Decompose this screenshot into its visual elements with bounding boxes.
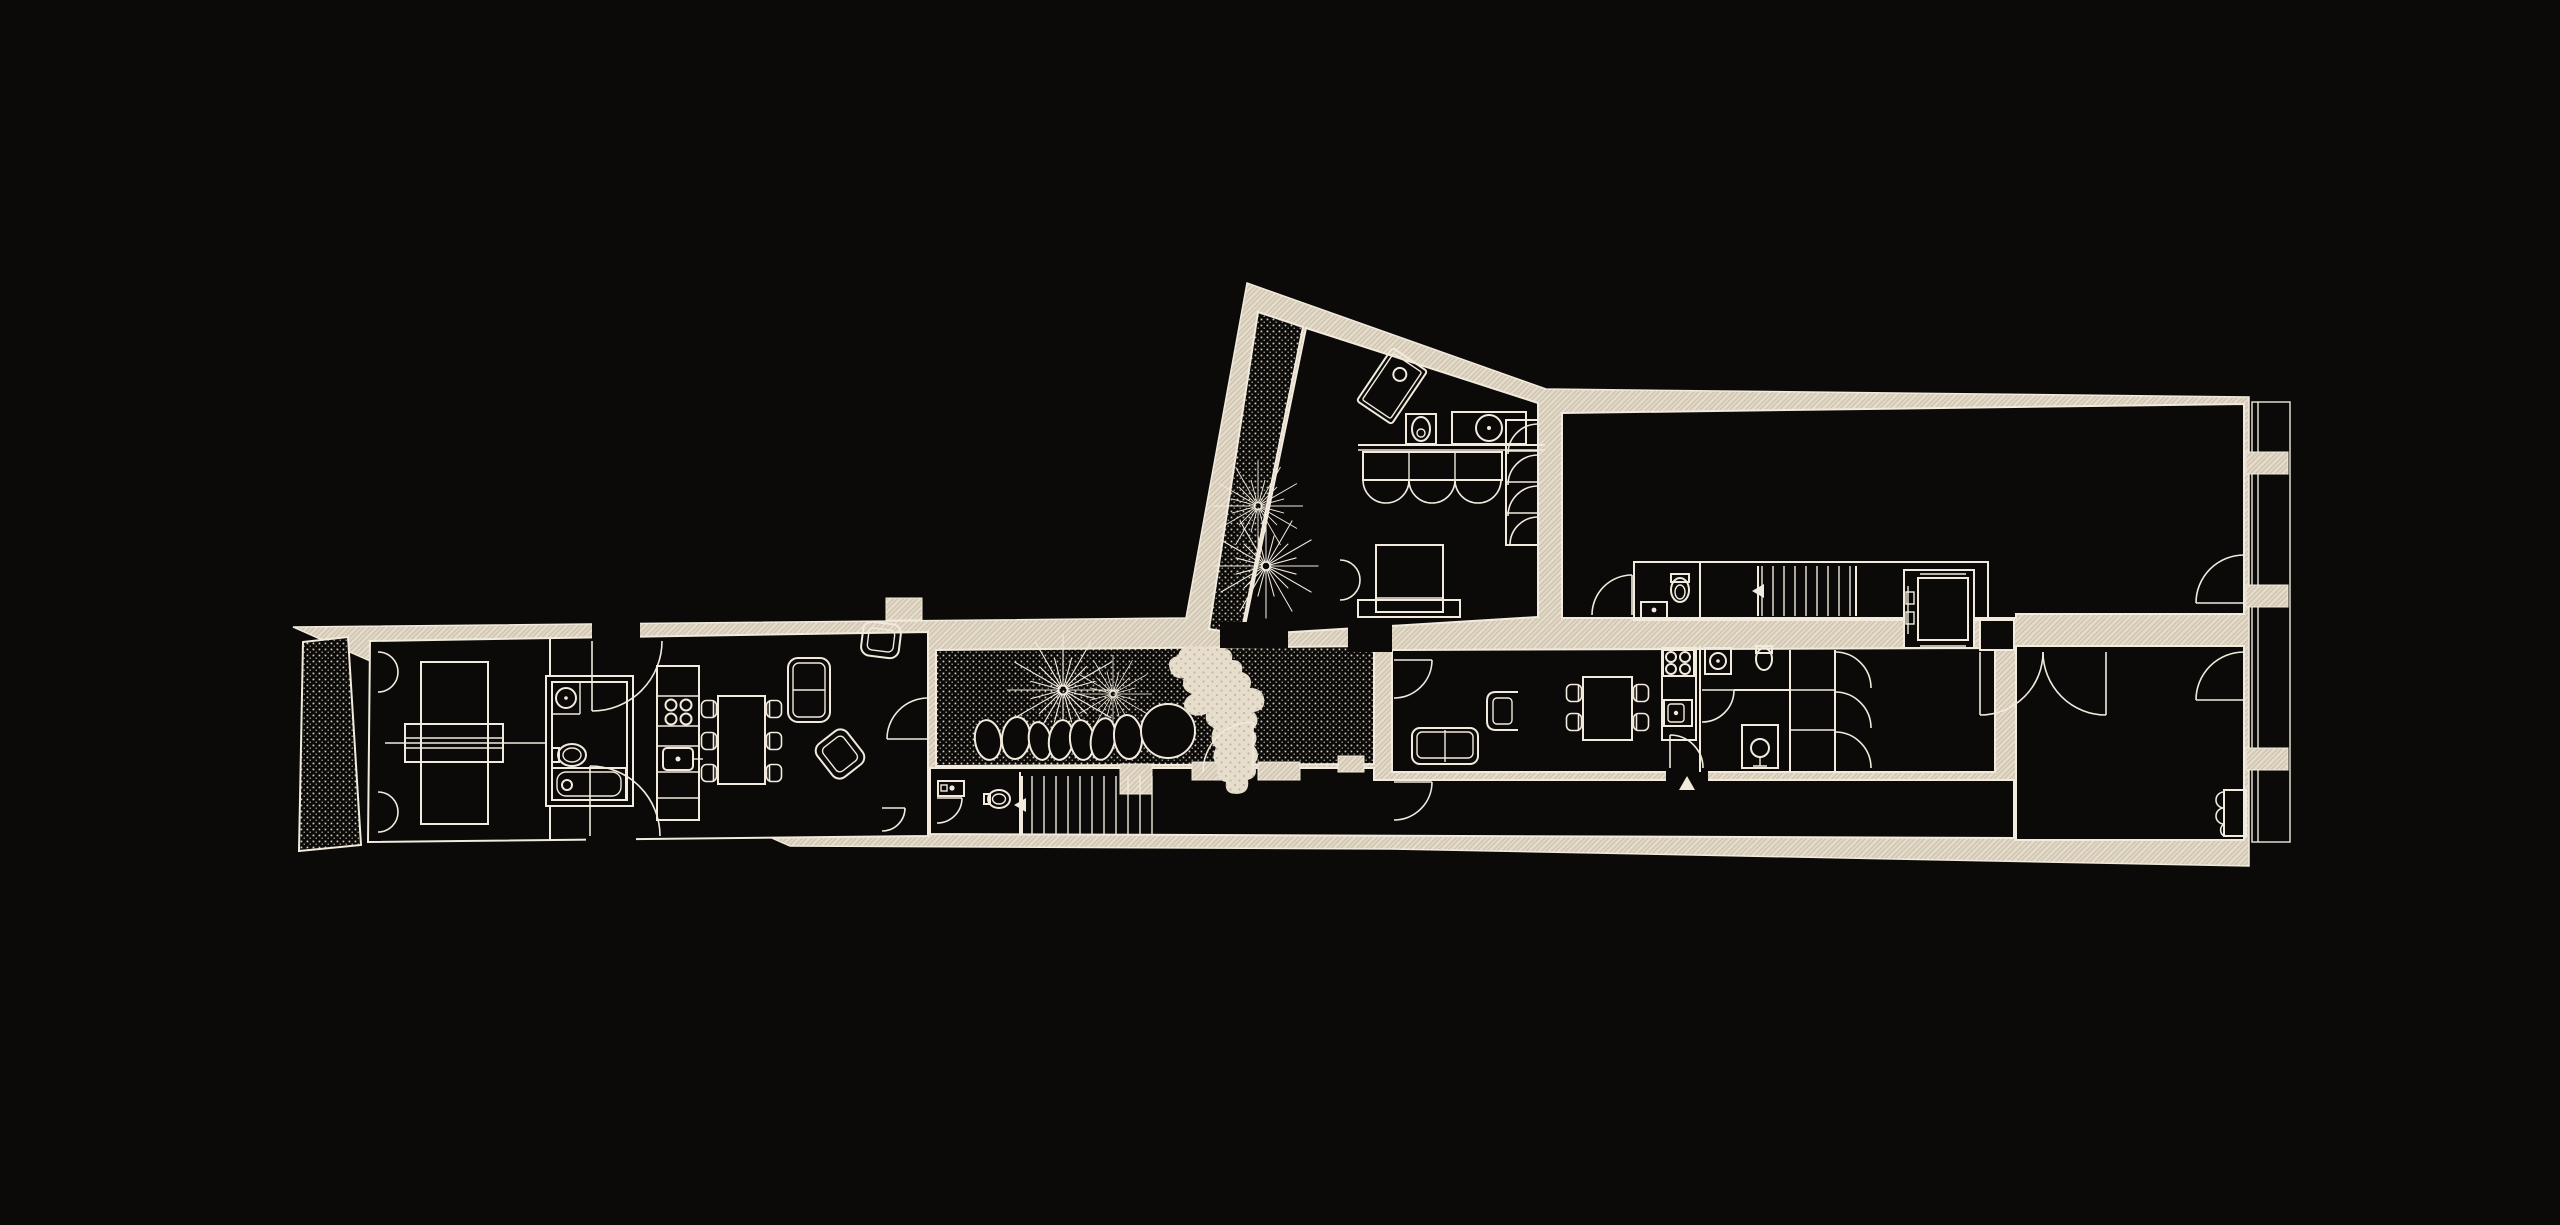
elevator: [1904, 570, 1974, 648]
west-dining: [702, 696, 782, 784]
terrace-floor: [299, 637, 361, 851]
east-passage-niche: [1980, 620, 2014, 650]
east-window-strip: [2246, 402, 2290, 842]
floor-plan-canvas: [0, 0, 2560, 1225]
floor-plan-drawing: [0, 0, 2560, 1225]
east-room-floor: [2016, 646, 2244, 840]
